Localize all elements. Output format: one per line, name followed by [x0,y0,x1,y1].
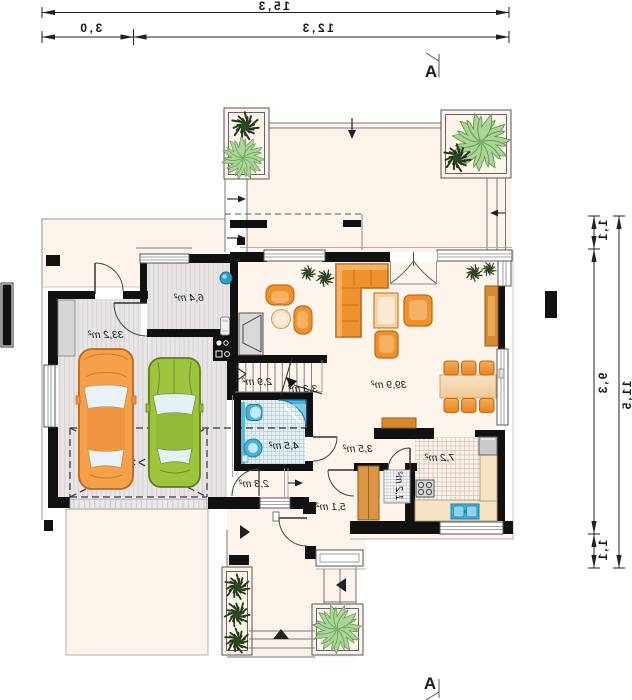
svg-text:4,5 m²: 4,5 m² [269,440,299,452]
svg-text:39,9 m²: 39,9 m² [371,379,407,391]
svg-text:A: A [424,674,436,693]
svg-text:3,5 m²: 3,5 m² [343,443,373,455]
svg-text:1,1: 1,1 [596,540,610,563]
svg-text:11,5: 11,5 [620,381,632,412]
svg-text:9,3: 9,3 [596,373,610,396]
svg-text:12,3: 12,3 [300,21,334,35]
svg-text:6,4 m²: 6,4 m² [174,292,204,304]
svg-text:15,3: 15,3 [256,0,290,13]
svg-text:2,9 m²: 2,9 m² [242,376,273,388]
svg-text:3,0: 3,0 [78,21,102,35]
svg-text:5,1 m²: 5,1 m² [316,501,346,513]
svg-text:A: A [425,62,437,81]
svg-text:2,3 m²: 2,3 m² [239,478,270,490]
svg-text:7,2 m²: 7,2 m² [425,452,455,464]
svg-text:1,2 m²: 1,2 m² [393,471,404,500]
svg-text:1,1: 1,1 [596,220,610,243]
svg-text:33,2 m²: 33,2 m² [88,329,124,341]
svg-text:3,3 m²: 3,3 m² [288,383,318,395]
